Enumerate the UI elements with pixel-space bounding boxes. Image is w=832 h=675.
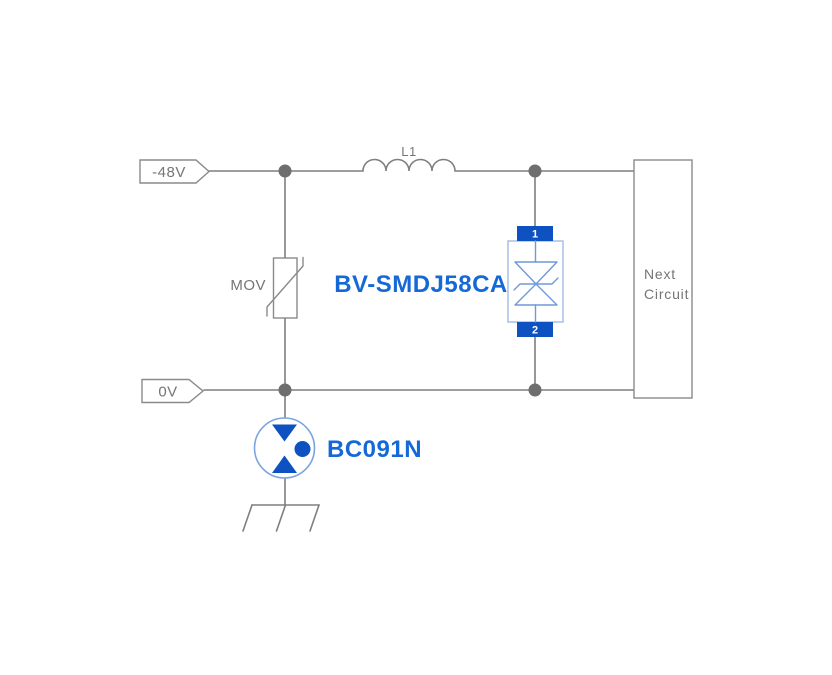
net-flag-neg48v: -48V [140, 160, 209, 183]
junction-dot [529, 384, 542, 397]
ground-hatch [310, 505, 319, 531]
net-flag-0v: 0V [142, 380, 203, 403]
ground-hatch [243, 505, 252, 531]
net-label-0v: 0V [158, 384, 177, 401]
tvs-pin2-number: 2 [532, 325, 538, 337]
arrester-part-number: BC091N [327, 436, 422, 463]
next-circuit-label-line2: Circuit [644, 286, 689, 302]
tvs-pin1-number: 1 [532, 229, 538, 241]
net-label-neg48v: -48V [152, 164, 186, 181]
schematic-canvas: -48V 0V L1 MOV 1 2 BV-SMDJ58CA [0, 0, 832, 675]
arrester-dot [295, 441, 311, 457]
junction-dot [279, 384, 292, 397]
varistor-label: MOV [230, 277, 266, 294]
ground-symbol [243, 505, 319, 531]
junction-dot [529, 165, 542, 178]
tvs-diode: 1 2 BV-SMDJ58CA [334, 226, 563, 337]
next-circuit-label-line1: Next [644, 266, 676, 282]
inductor-label: L1 [401, 144, 416, 159]
circuit-schematic: -48V 0V L1 MOV 1 2 BV-SMDJ58CA [0, 0, 832, 675]
varistor-mov: MOV [230, 258, 303, 319]
next-circuit-block: Next Circuit [634, 160, 692, 398]
surge-arrester-bc091n: BC091N [255, 418, 423, 478]
ground-hatch [277, 505, 286, 531]
junction-dot [279, 165, 292, 178]
varistor-body [274, 258, 298, 318]
wire-top-rail [206, 160, 634, 171]
tvs-part-number: BV-SMDJ58CA [334, 271, 508, 298]
